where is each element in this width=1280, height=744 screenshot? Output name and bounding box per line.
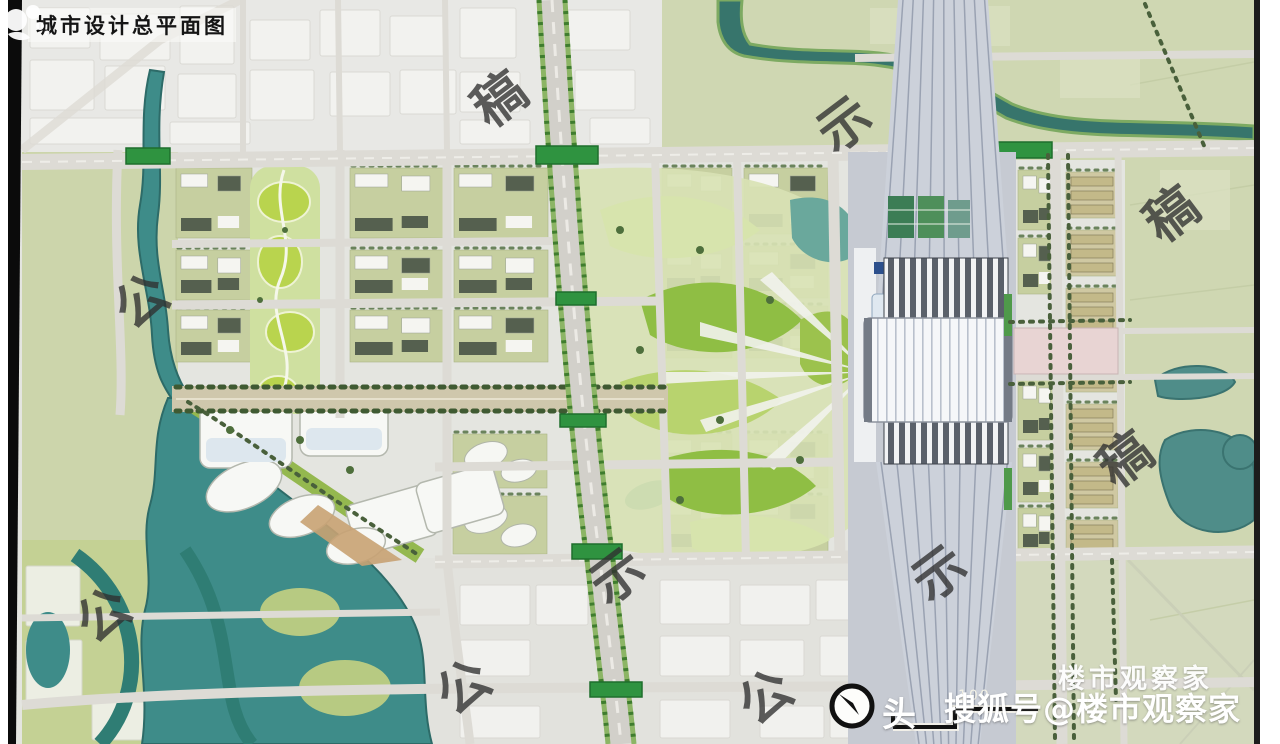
north-arrow-icon [832,686,872,726]
east-plaza-pink [1014,328,1118,374]
mascot-logo-icon [0,0,56,48]
map-title: 城市设计总平面图 [28,8,236,42]
watermark-partial-char: 头 [882,687,916,736]
station-hall [864,318,1012,422]
master-plan-image: 100 城市设计总平面图 稿示公稿稿示示公公公 楼市观察家 头 搜狐号@楼市观察… [0,0,1280,744]
platform-south [884,420,1008,464]
platform-north [884,258,1008,318]
map-canvas: 100 [0,0,1280,744]
watermark-account: 搜狐号@楼市观察家 [944,684,1241,730]
sports-courts [888,196,970,238]
